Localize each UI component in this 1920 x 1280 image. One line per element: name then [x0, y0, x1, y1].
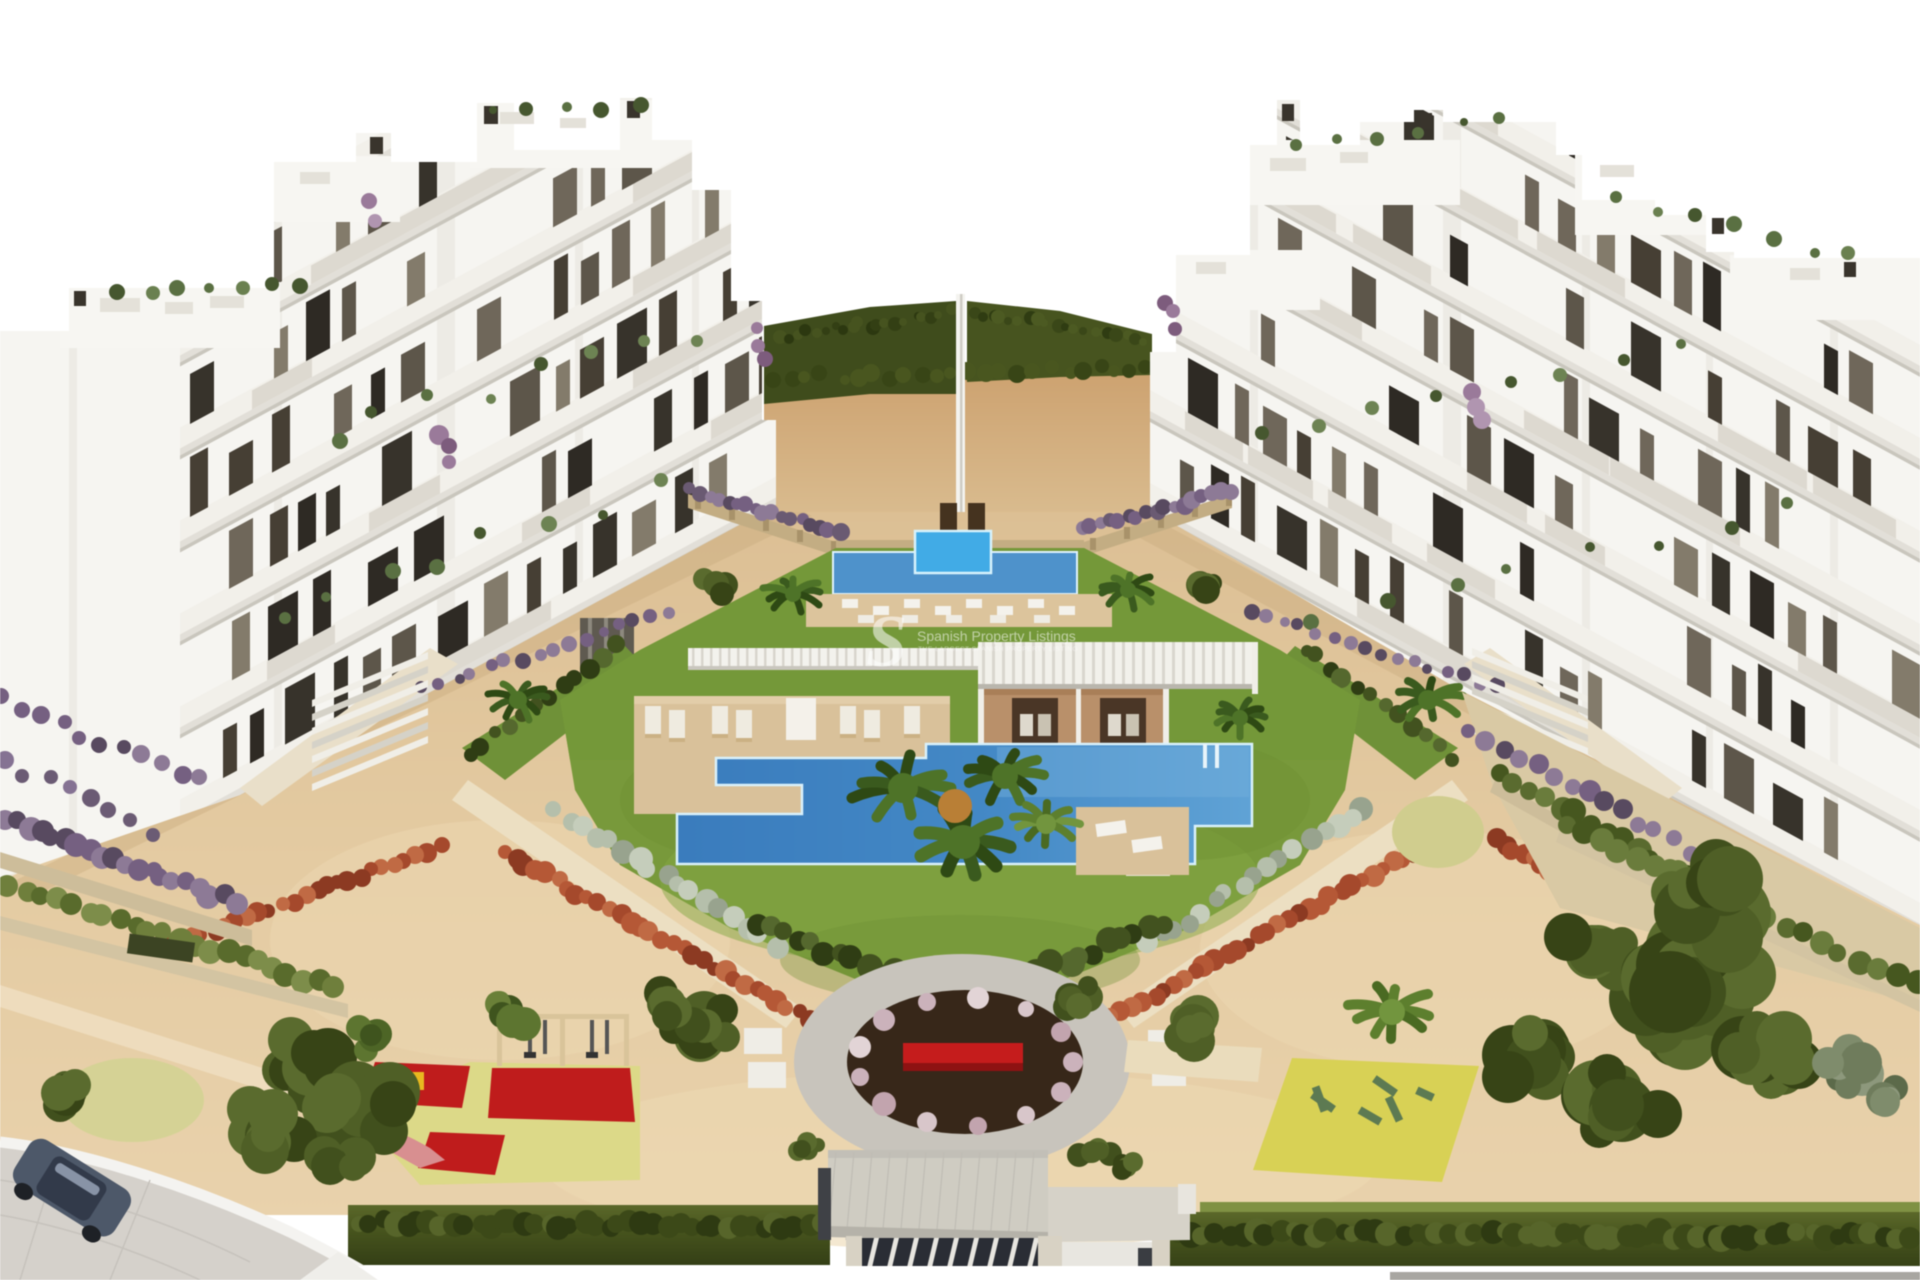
svg-text:Spanish Property Listings: Spanish Property Listings [917, 628, 1076, 644]
svg-text:S: S [866, 601, 907, 683]
svg-text:THE LARGEST SPANISH PROPERTY L: THE LARGEST SPANISH PROPERTY LISTING [918, 646, 1078, 653]
